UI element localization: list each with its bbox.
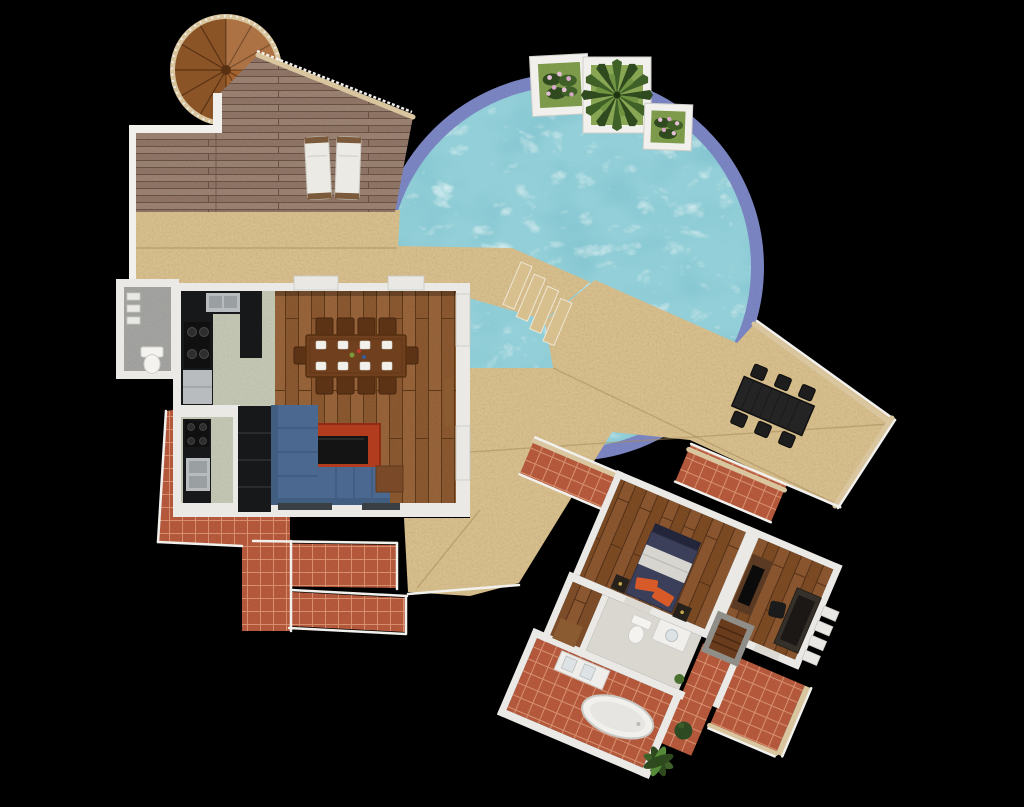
kitchen-island — [240, 314, 262, 358]
glass-door — [362, 503, 400, 510]
deck-corner-railing — [213, 93, 222, 133]
sun-lounger — [304, 136, 331, 199]
table-deco — [350, 353, 355, 358]
floorplan-render — [0, 0, 1024, 807]
deck-railing-left — [129, 125, 136, 215]
flower-planter-right — [643, 103, 693, 151]
bookcase — [238, 406, 271, 512]
sun-lounger — [335, 137, 361, 200]
wall-shadow — [275, 291, 456, 296]
glass-door — [278, 503, 332, 510]
wc-shelf — [127, 317, 140, 324]
table-deco — [362, 355, 366, 359]
door-leaf — [444, 378, 453, 426]
terrace-railing-west — [129, 208, 136, 288]
palm-planter — [581, 57, 653, 133]
floorplan-stage — [0, 0, 1024, 807]
wc-room — [116, 279, 179, 379]
wc-shelf — [127, 293, 140, 300]
window-sill-east — [456, 294, 470, 346]
window-sill-north — [388, 276, 424, 290]
kitchen — [181, 291, 275, 410]
utility-sink-icon — [186, 458, 210, 491]
patio-mid-band — [253, 543, 397, 588]
utility-stove-icon — [185, 421, 209, 447]
patio-ramp — [290, 592, 407, 632]
flower-planter-left — [529, 54, 590, 117]
kitchen-sink-icon — [206, 293, 240, 312]
side-table — [376, 466, 403, 492]
dining-table — [306, 335, 406, 377]
table-deco — [357, 349, 361, 353]
coffee-table — [313, 436, 368, 464]
window-sill-east — [456, 426, 470, 480]
deck-railing-top — [131, 125, 216, 133]
stove-icon — [184, 322, 210, 368]
wc-shelf — [127, 305, 140, 312]
utility-kitchen — [175, 405, 243, 517]
window-sill-north — [294, 276, 338, 290]
